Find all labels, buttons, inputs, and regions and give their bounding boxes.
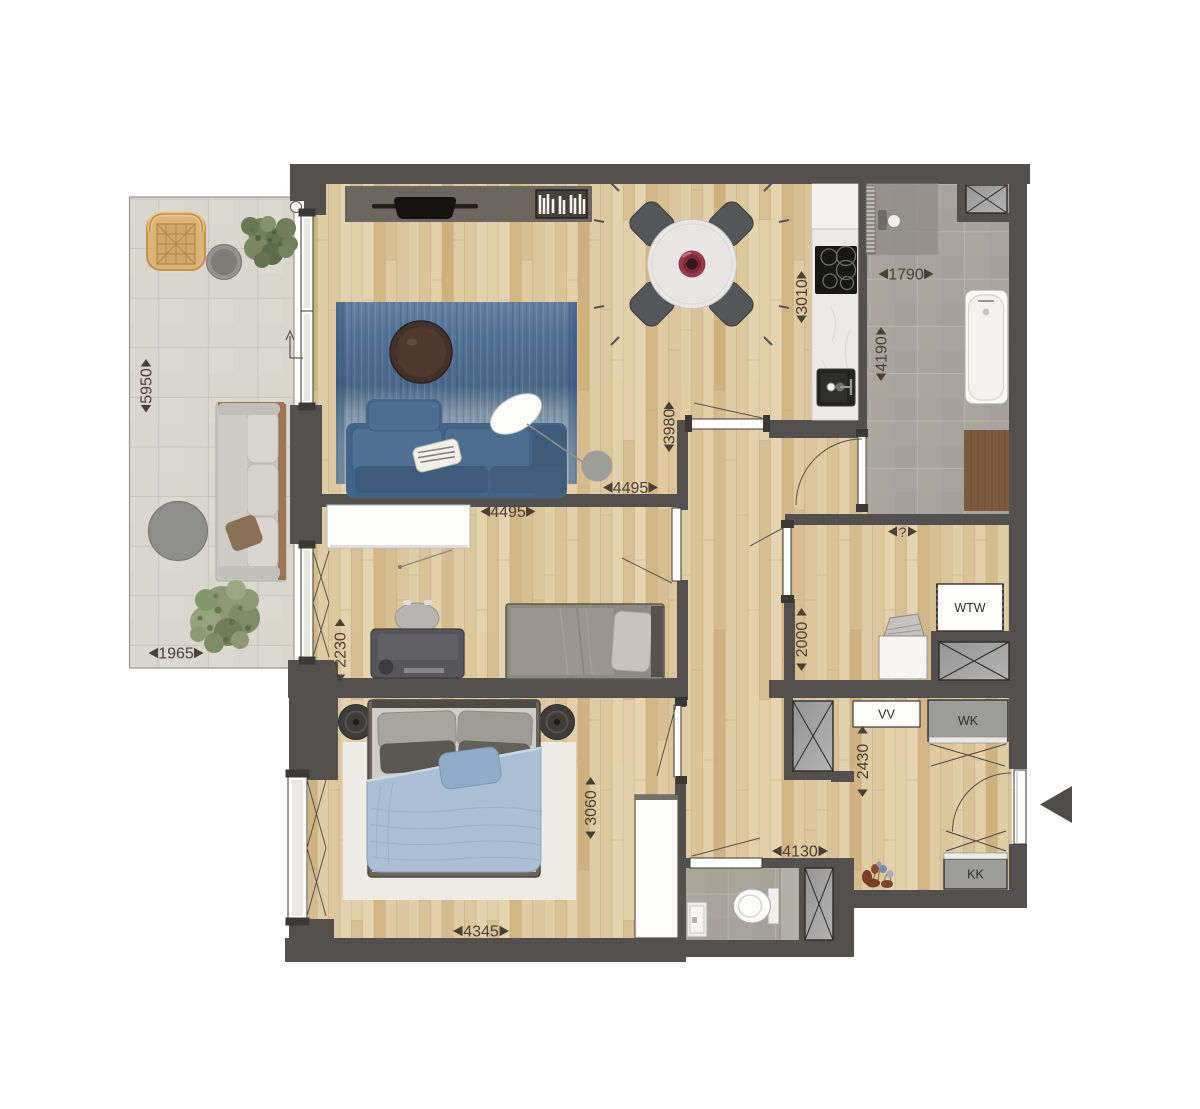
- svg-text:WTW: WTW: [954, 601, 985, 615]
- svg-text:1790: 1790: [888, 267, 924, 284]
- svg-text:3010: 3010: [794, 279, 811, 315]
- svg-text:WK: WK: [958, 714, 979, 728]
- svg-text:VV: VV: [878, 708, 895, 722]
- svg-text:3060: 3060: [583, 790, 600, 826]
- svg-text:KK: KK: [967, 868, 984, 882]
- svg-text:2430: 2430: [855, 744, 872, 780]
- svg-text:4495: 4495: [613, 480, 649, 497]
- svg-text:5950: 5950: [139, 368, 156, 404]
- svg-text:4495: 4495: [490, 504, 526, 521]
- svg-text:2230: 2230: [333, 632, 350, 668]
- svg-text:4345: 4345: [463, 924, 499, 941]
- svg-text:1965: 1965: [158, 646, 194, 663]
- svg-text:2000: 2000: [794, 622, 811, 658]
- svg-text:4130: 4130: [782, 844, 818, 861]
- svg-text:4190: 4190: [874, 336, 891, 372]
- svg-text:?: ?: [899, 524, 907, 540]
- svg-text:3980: 3980: [662, 409, 679, 445]
